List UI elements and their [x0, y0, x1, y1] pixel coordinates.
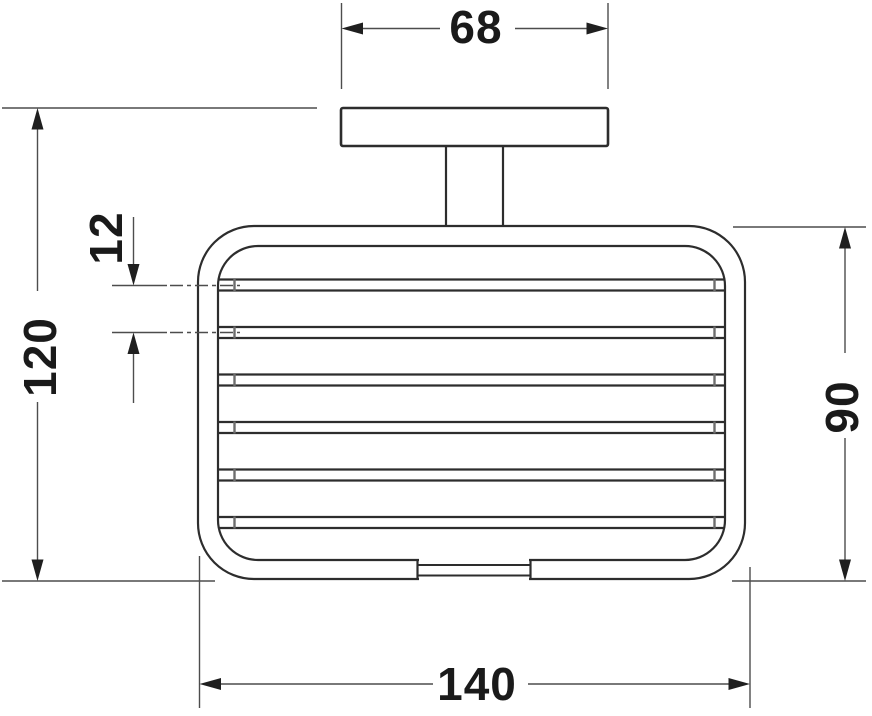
arrow-right-icon	[587, 23, 609, 35]
basket-bar	[219, 280, 724, 291]
dim-label-basket-height: 90	[816, 380, 868, 433]
basket-bar	[219, 327, 724, 338]
technical-drawing-soap-basket: 68 120 12 90 140	[0, 0, 872, 716]
bar-end-ticks	[235, 279, 715, 529]
basket-bar	[219, 422, 724, 433]
dim-label-basket-width: 140	[437, 658, 517, 710]
dim-label-overall-height: 120	[14, 317, 66, 397]
arrow-up-icon	[839, 227, 851, 249]
dim-label-bar-spacing: 12	[80, 211, 132, 264]
basket-inner-rim	[218, 246, 725, 560]
arrow-left-icon	[200, 678, 222, 690]
basket-bar	[219, 470, 724, 481]
basket-bar	[219, 517, 724, 528]
mounting-stem	[446, 147, 503, 226]
dim-label-plate-width: 68	[449, 1, 502, 53]
arrow-down-icon	[128, 264, 140, 286]
arrow-down-icon	[32, 560, 44, 582]
arrow-down-icon	[839, 560, 851, 582]
bottom-rim-mask	[419, 556, 529, 584]
fixture	[198, 108, 745, 584]
arrow-left-icon	[342, 23, 364, 35]
basket-bars	[219, 280, 724, 529]
dimension-arrowheads	[32, 23, 852, 691]
basket-bar	[219, 375, 724, 386]
arrow-up-icon	[128, 333, 140, 355]
arrow-right-icon	[729, 678, 751, 690]
wall-plate	[341, 108, 608, 146]
drawing-canvas: 68 120 12 90 140	[0, 0, 872, 716]
arrow-up-icon	[32, 108, 44, 130]
